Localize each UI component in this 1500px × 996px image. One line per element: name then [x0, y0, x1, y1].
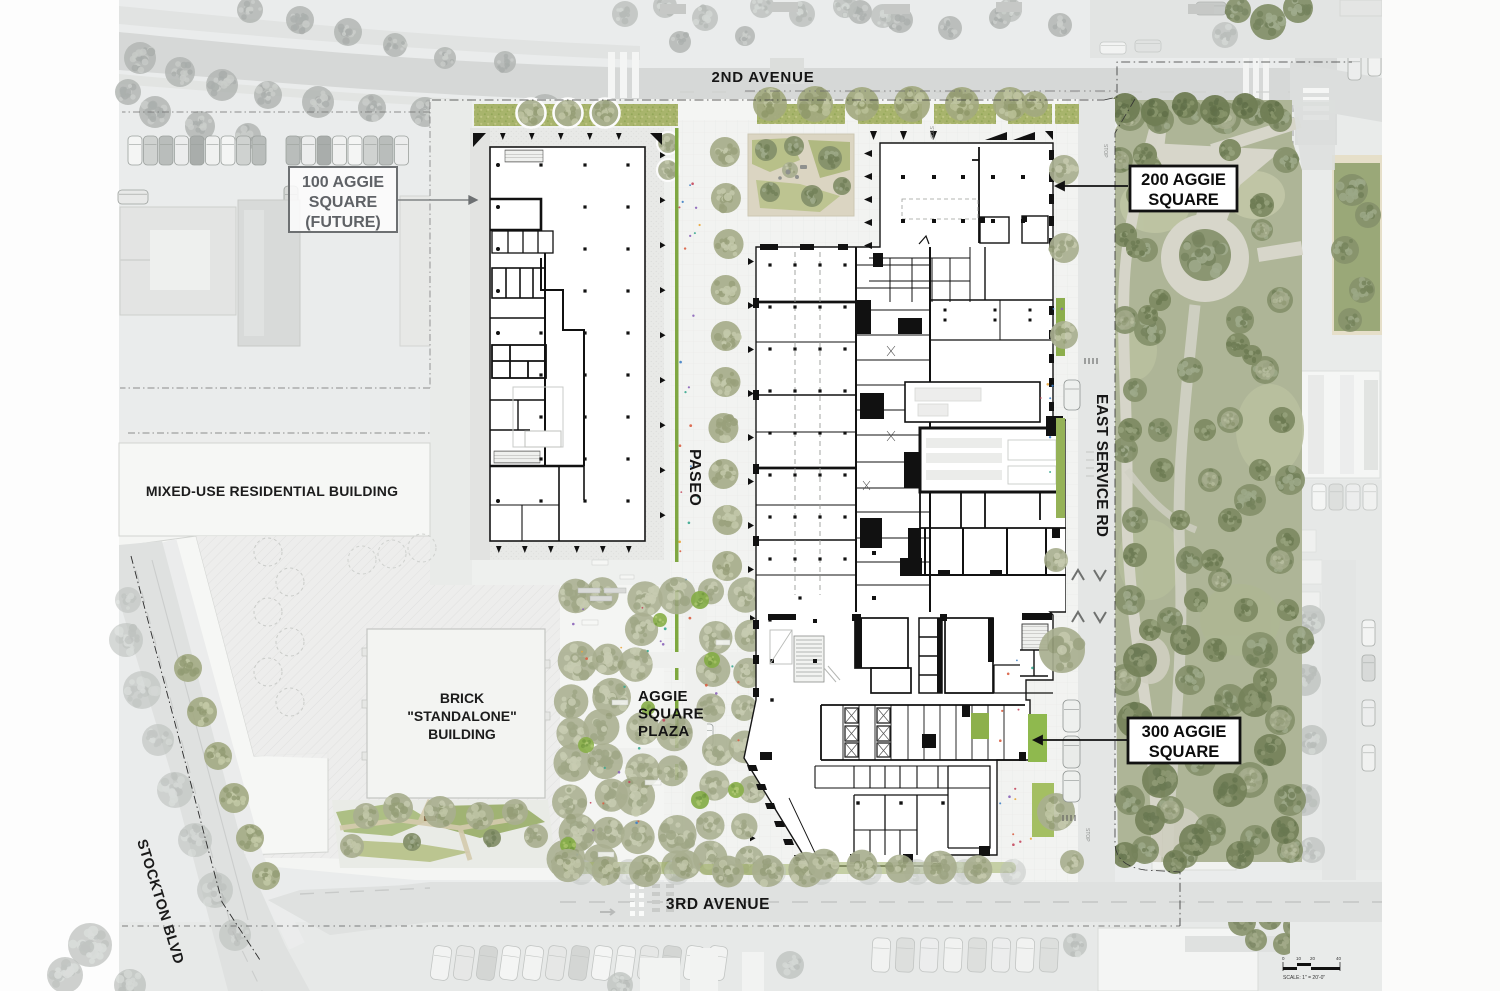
svg-text:MIXED-USE RESIDENTIAL BUILDING: MIXED-USE RESIDENTIAL BUILDING	[146, 483, 398, 499]
svg-text:PASEO: PASEO	[686, 449, 703, 506]
svg-text:3RD AVENUE: 3RD AVENUE	[666, 896, 770, 913]
